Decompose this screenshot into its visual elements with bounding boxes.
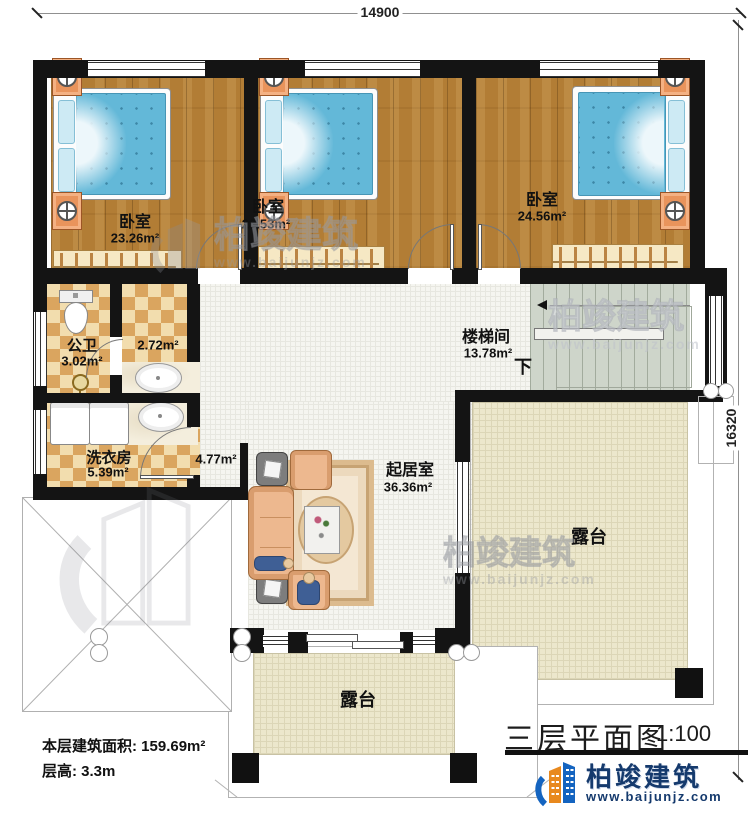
room-area-stairwell: 13.78m² <box>464 347 512 360</box>
window <box>709 296 723 386</box>
washing-machine <box>50 402 90 445</box>
window <box>305 61 420 77</box>
sliding-door-panel <box>352 641 404 649</box>
column <box>232 753 259 783</box>
room-label-stairwell: 楼梯间 <box>462 330 510 346</box>
toilet-button <box>73 293 78 298</box>
wall <box>690 60 705 284</box>
speaker-icon <box>52 192 82 230</box>
pillow <box>668 100 685 144</box>
sliding-door-panel <box>306 634 358 642</box>
wall <box>33 487 248 500</box>
wall <box>455 402 470 462</box>
blanket <box>283 93 333 193</box>
blanket <box>76 93 126 193</box>
stair-line <box>550 305 690 306</box>
stair-void-outline <box>556 306 692 388</box>
brand-website: www.baijunjz.com <box>586 789 722 804</box>
pillow <box>58 100 75 144</box>
title-underline <box>505 750 748 755</box>
column-circle <box>90 644 108 662</box>
room-area-hall: 4.77m² <box>195 453 236 466</box>
wall <box>455 390 723 402</box>
room-label-bedroom2: 卧室 <box>252 200 284 216</box>
dimension-line-right <box>738 20 739 780</box>
wall <box>33 393 200 403</box>
speaker-icon <box>660 192 690 230</box>
blanket <box>614 92 664 194</box>
floor-area-note: 本层建筑面积: 159.69m² <box>42 735 205 756</box>
room-area-bedroom2: 23.53m² <box>242 218 290 231</box>
armchair <box>290 450 332 490</box>
wall <box>288 632 308 653</box>
pillow <box>668 148 685 192</box>
speaker-cone-icon <box>57 201 77 221</box>
wall <box>244 78 258 268</box>
person-head <box>283 558 294 569</box>
wall <box>110 284 122 337</box>
room-area-bedroom1: 23.26m² <box>111 232 159 245</box>
wall <box>452 268 478 284</box>
wall <box>37 268 198 284</box>
room-label-bathroom: 公卫 <box>67 339 97 354</box>
stair-direction-arrow-icon <box>537 300 547 310</box>
window <box>540 61 658 77</box>
column <box>450 753 477 783</box>
wall <box>240 268 408 284</box>
pillow <box>265 100 282 144</box>
window <box>263 635 288 647</box>
column-circle <box>703 383 719 399</box>
window <box>88 61 205 77</box>
floor-plan: 卧室 23.26m² 卧室 23.53m² 卧室 24.56m² 公卫 3.02… <box>0 0 750 814</box>
stair-down-label: 下 <box>514 358 532 376</box>
brand-logo-icon <box>534 757 582 807</box>
roof-below <box>22 497 232 712</box>
sink-drain <box>156 376 160 380</box>
room-area-bedroom3: 24.56m² <box>518 210 566 223</box>
speaker-cone-icon <box>665 201 685 221</box>
room-area-living: 36.36m² <box>384 481 432 494</box>
room-label-terrace-bottom: 露台 <box>340 691 376 709</box>
column-circle <box>463 644 480 661</box>
room-area-laundry: 5.39m² <box>87 466 128 479</box>
door-leaf <box>478 224 482 270</box>
terrace-door-window <box>456 462 469 573</box>
room-label-terrace-right: 露台 <box>571 528 607 546</box>
washing-machine <box>89 402 129 445</box>
wall <box>187 284 200 362</box>
wall <box>240 443 248 500</box>
room-label-laundry: 洗衣房 <box>86 451 131 466</box>
room-label-bedroom3: 卧室 <box>526 193 558 209</box>
table-lamp <box>262 459 281 478</box>
room-area-bathroom: 3.02m² <box>61 355 102 368</box>
window <box>34 312 47 386</box>
stair-handrail <box>534 328 664 340</box>
dimension-label-height: 16320 <box>723 406 739 451</box>
dimension-label-width: 14900 <box>358 4 403 20</box>
sink-drain <box>158 414 162 418</box>
window <box>413 635 435 647</box>
wall <box>520 268 727 284</box>
floor-height-note: 层高: 3.3m <box>42 760 115 781</box>
column-circle <box>233 644 251 662</box>
side-table <box>256 452 288 486</box>
wall <box>187 403 200 427</box>
window <box>34 410 47 474</box>
plan-scale: 1:100 <box>656 721 711 747</box>
pillow <box>265 148 282 192</box>
door-leaf <box>140 475 194 479</box>
column-circle <box>718 383 734 399</box>
person-head <box>303 572 315 584</box>
door-leaf <box>450 224 454 270</box>
coffee-table <box>304 506 340 554</box>
room-label-bedroom1: 卧室 <box>119 215 151 231</box>
table-lamp <box>262 578 281 597</box>
pillow <box>58 148 75 192</box>
wall <box>462 78 476 268</box>
room-area-vanity: 2.72m² <box>137 339 178 352</box>
column <box>675 668 703 698</box>
room-label-living: 起居室 <box>386 463 434 479</box>
